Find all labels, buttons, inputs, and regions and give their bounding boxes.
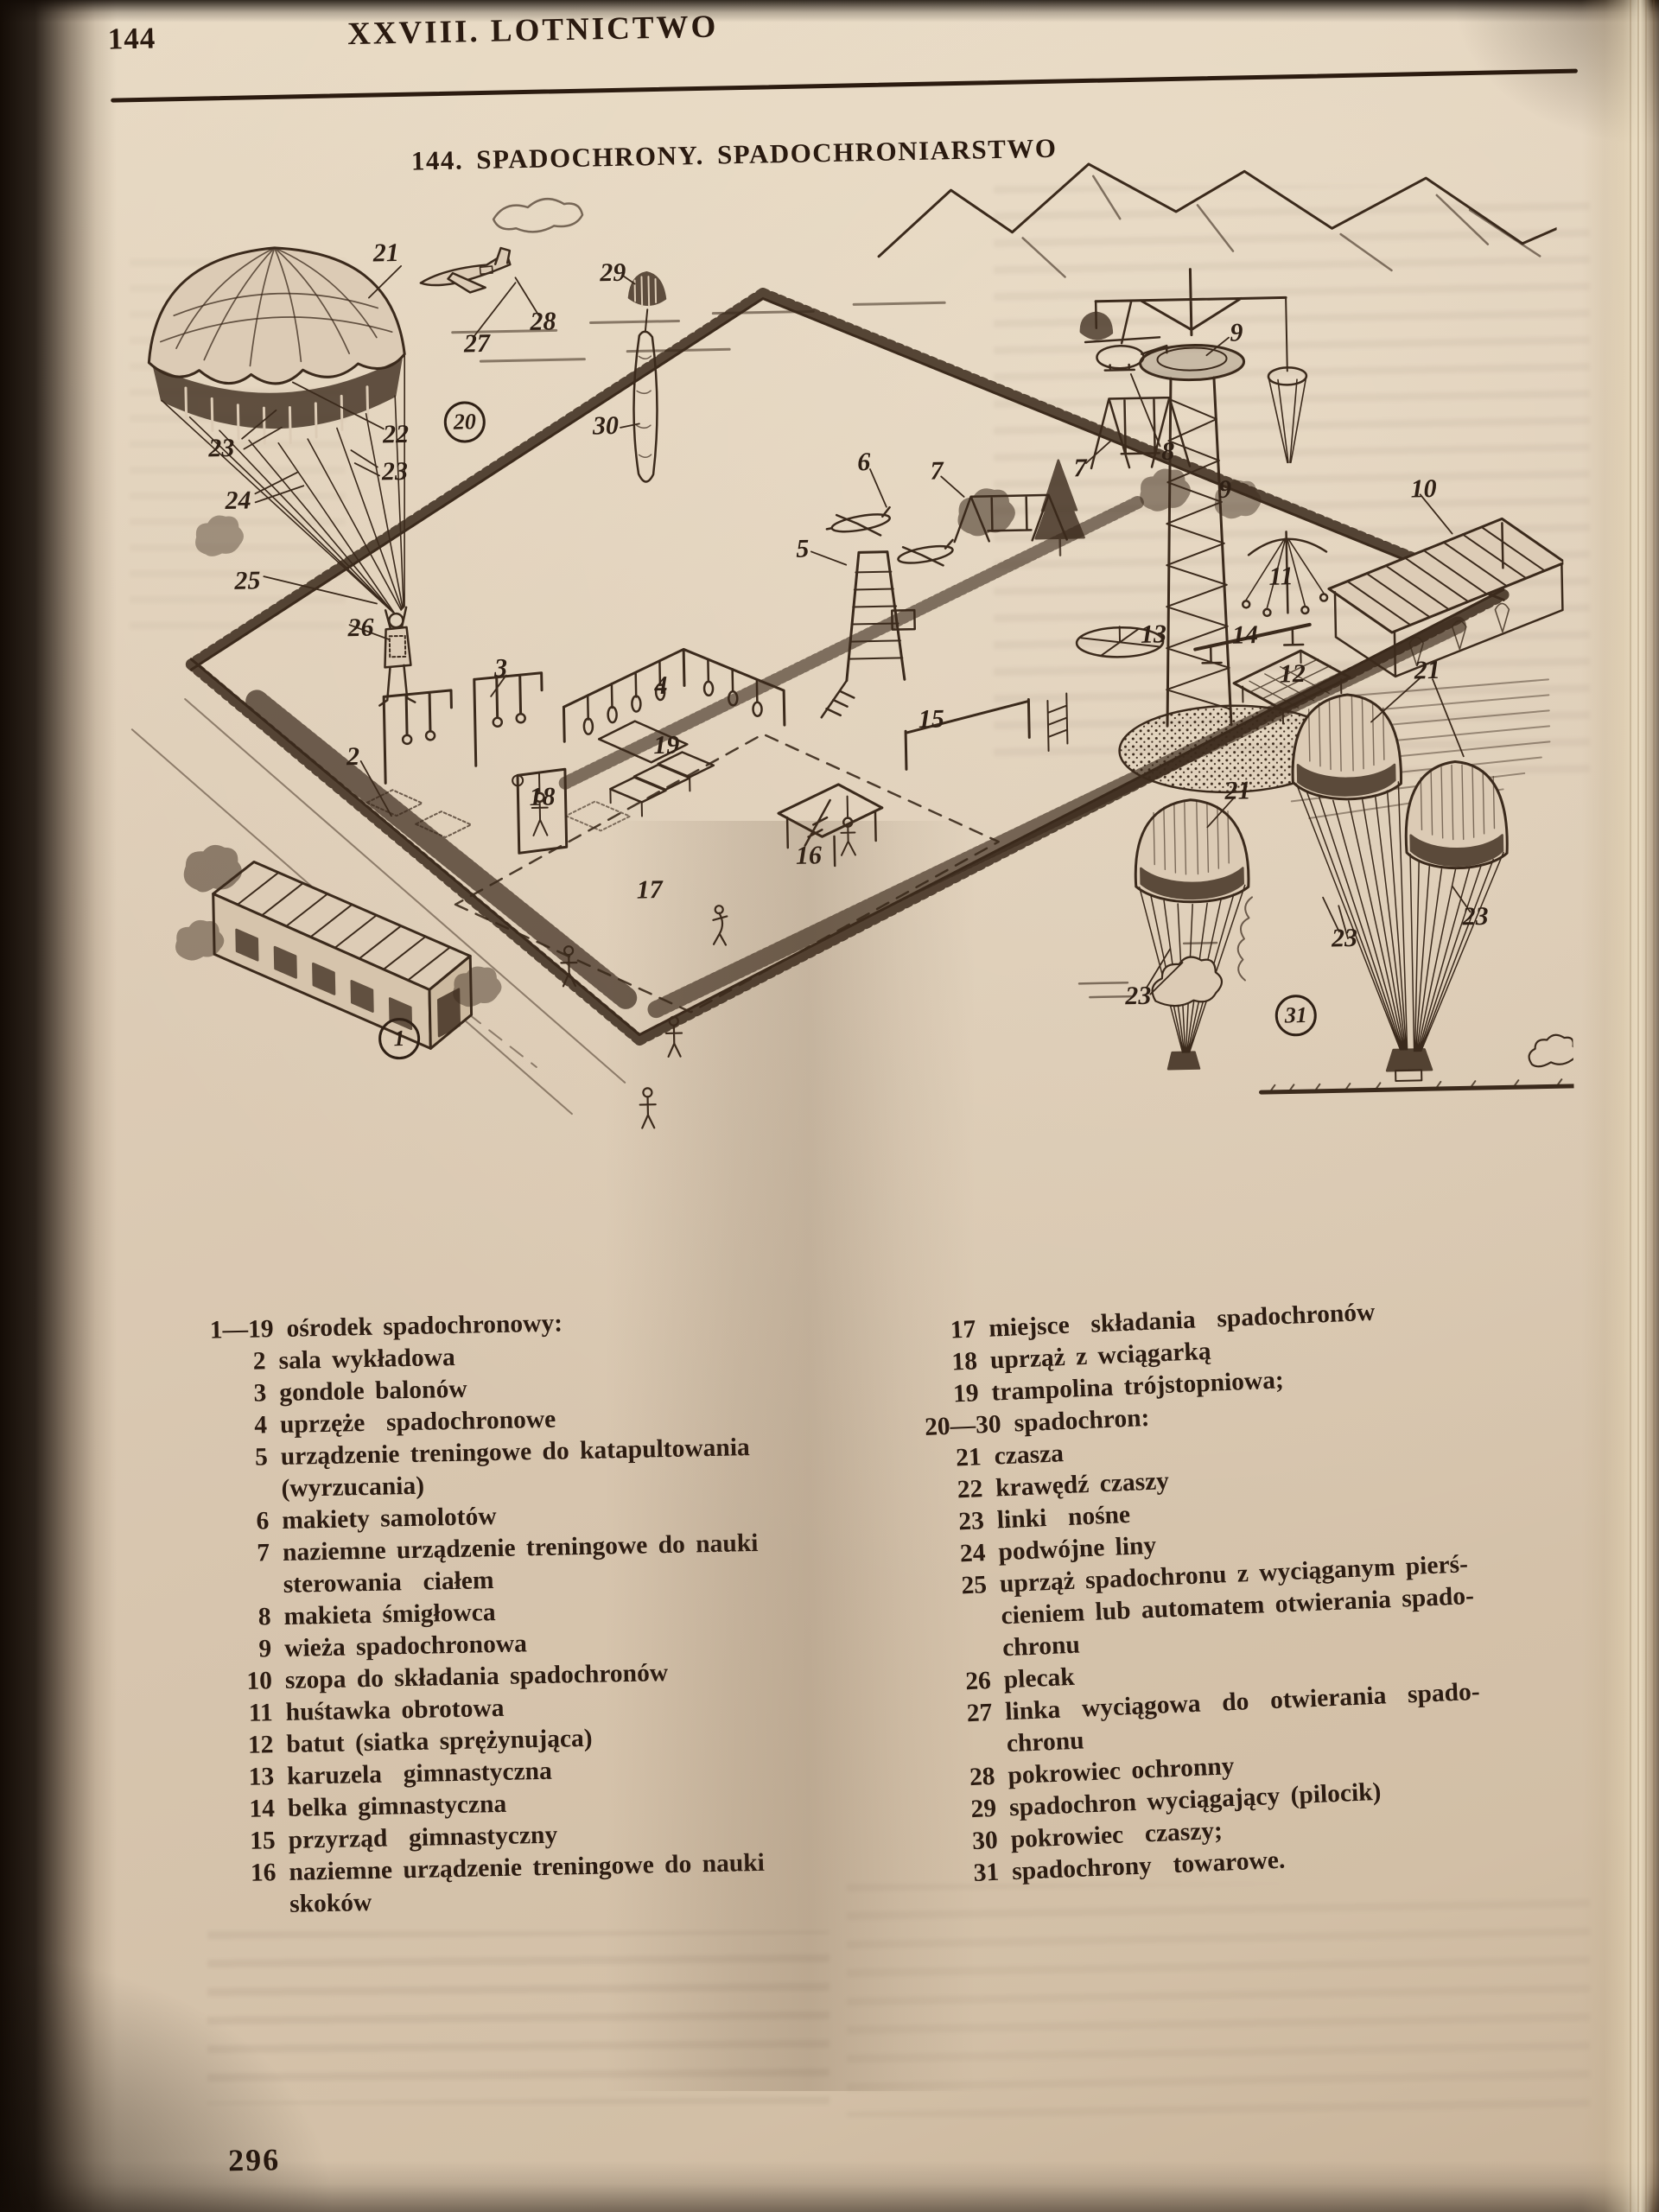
figure-label: 7 [1073, 454, 1087, 483]
figure-label: 27 [464, 329, 491, 359]
legend-item-number: 22 [927, 1473, 984, 1508]
legend-item-number: 14 [219, 1793, 276, 1826]
legend-item-number: 19 [923, 1377, 980, 1412]
legend-item-number: 21 [925, 1441, 982, 1476]
figure-label: 21 [1224, 776, 1251, 806]
figure-label: 26 [347, 613, 374, 644]
legend-item-number: 16 [220, 1857, 276, 1922]
legend-item-number: 10 [217, 1665, 273, 1698]
figure-labels-layer: 2128272930202223232425263296778910115131… [68, 113, 1578, 1318]
legend-item-text: czasza [994, 1438, 1065, 1472]
legend-item-number: 2 [210, 1345, 266, 1378]
legend-left-column: 1—19ośrodek spadochronowy:2sala wykładow… [209, 1300, 938, 1923]
figure-label: 10 [1410, 474, 1437, 505]
figure-illustration: 2128272930202223232425263296778910115131… [68, 113, 1578, 1318]
figure-label: 16 [796, 841, 823, 871]
page-number-bottom: 296 [228, 2141, 281, 2178]
legend-item-number: 15 [219, 1825, 276, 1858]
legend-item-number: 30 [942, 1825, 999, 1859]
figure-label-circled: 1 [378, 1018, 421, 1060]
figure-label: 2 [346, 742, 360, 772]
legend-item-number: 27 [937, 1697, 995, 1764]
legend-item-text: makiety samolotów [282, 1501, 497, 1537]
figure-label: 23 [1332, 924, 1358, 954]
figure-label: 21 [373, 238, 400, 269]
figure-label: 9 [1230, 318, 1243, 347]
legend-item-number: 1—19 [209, 1313, 273, 1346]
legend-item-number: 20—30 [924, 1408, 1001, 1444]
page-number-top: 144 [107, 22, 156, 57]
legend-item-text: spadochron: [1014, 1402, 1150, 1440]
figure-label: 25 [234, 566, 261, 596]
legend-item-number: 28 [939, 1761, 996, 1796]
legend-item-number: 13 [219, 1761, 275, 1794]
legend-item-number: 31 [944, 1857, 1001, 1891]
legend-item-text: karuzela gimnastyczna [287, 1756, 552, 1793]
legend-item-number: 18 [921, 1345, 978, 1380]
figure-label: 6 [857, 448, 871, 477]
legend-item-text: wieża spadochronowa [284, 1628, 527, 1665]
page-content: 144 XXVIII. LOTNICTWO 144. SPADOCHRONY. … [0, 0, 1659, 2212]
legend-item-number: 25 [931, 1569, 990, 1668]
figure-label: 3 [494, 654, 508, 683]
book-page-photo: 144 XXVIII. LOTNICTWO 144. SPADOCHRONY. … [0, 0, 1659, 2212]
chapter-title: XXVIII. LOTNICTWO [238, 6, 827, 55]
header-rule [111, 69, 1578, 103]
figure-label: 19 [653, 731, 680, 761]
figure-label: 5 [796, 535, 810, 564]
figure-label: 23 [1125, 982, 1152, 1012]
legend-item-text: plecak [1003, 1662, 1075, 1696]
legend-item-text: uprzęże spadochronowe [280, 1404, 556, 1441]
figure-label: 22 [383, 420, 410, 450]
legend-item-text: przyrząd gimnastyczny [288, 1820, 557, 1857]
figure-label: 9 [1218, 475, 1232, 505]
legend-item-text: gondole balonów [279, 1374, 467, 1409]
legend-item-number: 17 [920, 1313, 977, 1348]
legend-item-text: ośrodek spadochronowy: [286, 1307, 563, 1344]
legend-item-text: belka gimnastyczna [288, 1789, 507, 1825]
legend-item-text: urządzenie treningowe do katapultowania … [280, 1432, 750, 1505]
legend-item-number: 4 [212, 1409, 268, 1442]
figure-label: 12 [1280, 659, 1306, 690]
figure-label: 23 [208, 434, 235, 464]
figure-label: 29 [600, 258, 626, 289]
legend-item-number: 9 [216, 1633, 272, 1666]
legend-item-number: 12 [218, 1729, 274, 1762]
figure-label: 4 [654, 671, 668, 701]
legend-item-number: 5 [212, 1441, 268, 1506]
legend-right-column: 17miejsce składania spadochronów18uprząż… [920, 1286, 1659, 1891]
legend-item-text: uprząż spadochronu z wyciąganym pierś- c… [999, 1548, 1476, 1664]
figure-label: 23 [382, 457, 409, 487]
legend-item-number: 8 [215, 1601, 271, 1634]
legend-item-text: naziemne urządzenie treningowe do nauki … [283, 1528, 760, 1601]
figure-label: 28 [530, 307, 556, 337]
legend-item-number: 26 [935, 1665, 992, 1700]
legend-item-text: huśtawka obrotowa [285, 1693, 505, 1729]
figure-label: 7 [930, 456, 944, 486]
legend-item-number: 3 [211, 1377, 267, 1410]
figure-label: 18 [529, 782, 556, 812]
figure-label-circled: 20 [443, 401, 486, 443]
figure-label: 11 [1268, 562, 1294, 592]
figure-label: 8 [1161, 437, 1175, 467]
figure-label: 23 [1462, 902, 1489, 932]
legend-item-number: 6 [213, 1505, 270, 1538]
figure-label: 17 [636, 875, 663, 906]
legend-item-number: 11 [217, 1697, 273, 1730]
legend-item-number: 7 [214, 1537, 270, 1602]
figure-label: 21 [1414, 656, 1440, 686]
figure-label: 30 [593, 411, 620, 442]
legend-item-text: naziemne urządzenie treningowe do nauki … [289, 1847, 766, 1921]
legend-item-text: sala wykładowa [278, 1342, 455, 1377]
figure-label: 13 [1141, 620, 1167, 650]
legend-item: 16naziemne urządzenie treningowe do nauk… [220, 1844, 938, 1923]
figure-label: 14 [1232, 620, 1259, 651]
legend-item-number: 23 [928, 1505, 985, 1540]
legend-item-number: 29 [940, 1793, 997, 1827]
figure-label-circled: 31 [1274, 995, 1317, 1037]
legend-item-text: makieta śmigłowca [283, 1597, 496, 1633]
legend-item-number: 24 [930, 1537, 987, 1572]
figure-label: 24 [225, 486, 251, 516]
figure-label: 15 [918, 704, 944, 734]
